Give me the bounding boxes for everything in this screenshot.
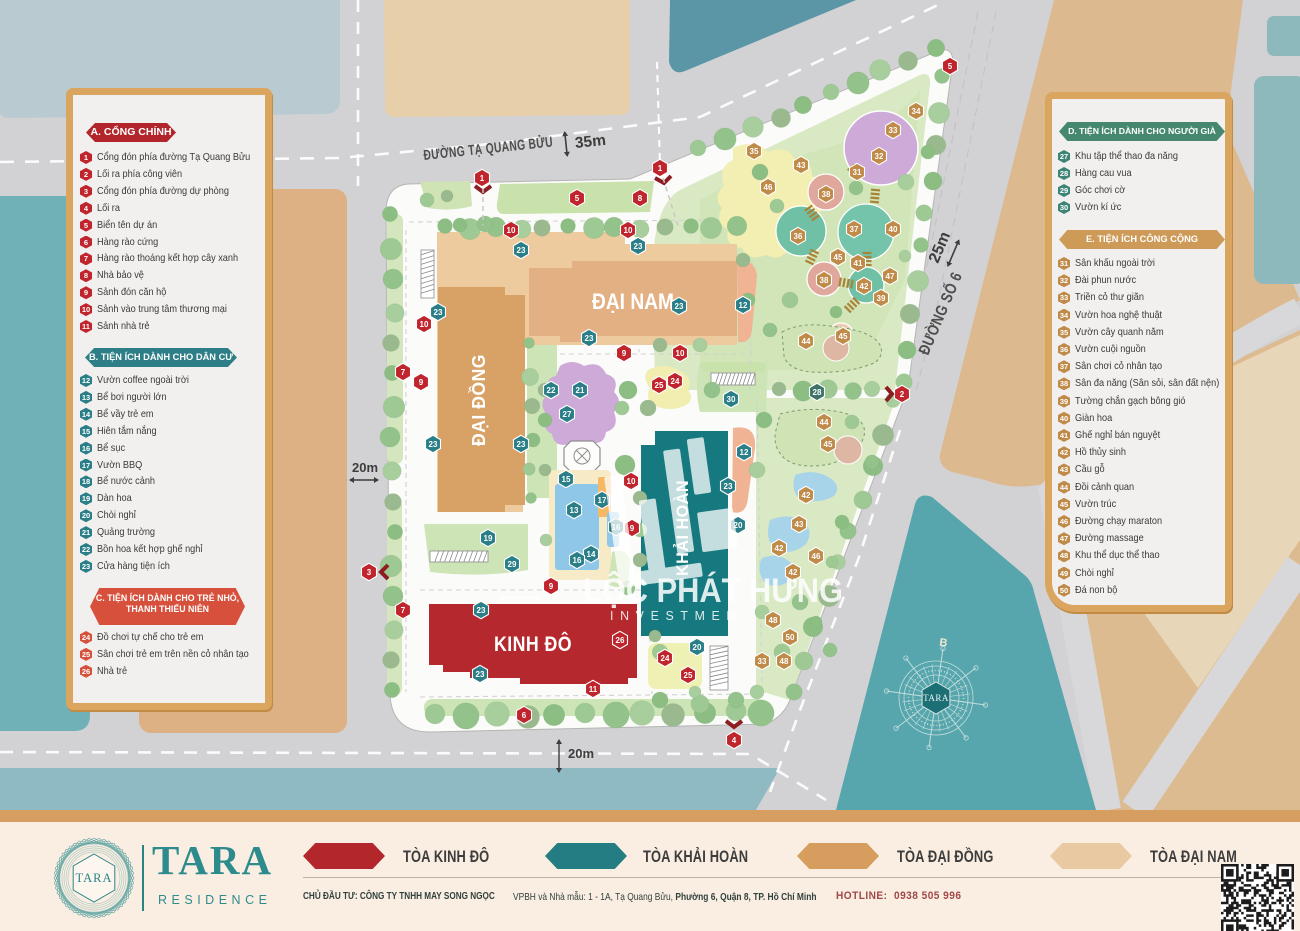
svg-text:13: 13 xyxy=(570,506,579,515)
svg-text:8: 8 xyxy=(638,194,643,203)
svg-text:46: 46 xyxy=(812,552,821,561)
svg-text:20: 20 xyxy=(693,643,702,652)
svg-text:27: 27 xyxy=(563,410,572,419)
svg-text:43: 43 xyxy=(795,520,804,529)
svg-text:42: 42 xyxy=(802,491,811,500)
svg-text:20m: 20m xyxy=(568,746,594,761)
svg-text:42: 42 xyxy=(775,544,784,553)
svg-text:9: 9 xyxy=(419,378,424,387)
svg-text:19: 19 xyxy=(484,534,493,543)
svg-text:10: 10 xyxy=(624,226,633,235)
svg-text:23: 23 xyxy=(477,606,486,615)
svg-text:4: 4 xyxy=(732,736,737,745)
svg-text:23: 23 xyxy=(634,242,643,251)
svg-text:38: 38 xyxy=(820,276,829,285)
svg-text:22: 22 xyxy=(547,386,556,395)
svg-text:7: 7 xyxy=(401,368,406,377)
svg-text:35: 35 xyxy=(750,147,759,156)
svg-text:23: 23 xyxy=(724,482,733,491)
svg-text:25: 25 xyxy=(684,671,693,680)
svg-text:TARA: TARA xyxy=(923,693,949,703)
svg-text:46: 46 xyxy=(764,183,773,192)
svg-text:24: 24 xyxy=(671,377,680,386)
svg-text:45: 45 xyxy=(834,253,843,262)
svg-text:KINH ĐÔ: KINH ĐÔ xyxy=(494,632,572,656)
svg-text:14: 14 xyxy=(587,550,596,559)
svg-text:23: 23 xyxy=(517,440,526,449)
svg-text:41: 41 xyxy=(854,259,863,268)
svg-text:48: 48 xyxy=(780,657,789,666)
svg-text:2: 2 xyxy=(900,390,905,399)
svg-text:10: 10 xyxy=(507,226,516,235)
svg-text:39: 39 xyxy=(877,294,886,303)
svg-text:16: 16 xyxy=(573,556,582,565)
svg-text:40: 40 xyxy=(889,225,898,234)
svg-text:ĐẠI ĐỒNG: ĐẠI ĐỒNG xyxy=(468,354,489,446)
svg-text:31: 31 xyxy=(853,168,862,177)
svg-text:5: 5 xyxy=(575,194,580,203)
svg-text:3: 3 xyxy=(367,568,372,577)
svg-text:20m: 20m xyxy=(352,460,378,475)
svg-text:43: 43 xyxy=(797,161,806,170)
svg-text:10: 10 xyxy=(676,349,685,358)
svg-text:9: 9 xyxy=(549,582,554,591)
svg-text:ĐẠI NAM: ĐẠI NAM xyxy=(592,289,674,314)
svg-text:45: 45 xyxy=(839,332,848,341)
svg-text:30: 30 xyxy=(727,395,736,404)
svg-text:11: 11 xyxy=(589,685,598,694)
svg-text:1: 1 xyxy=(480,174,485,183)
svg-text:17: 17 xyxy=(598,496,607,505)
svg-text:6: 6 xyxy=(522,711,527,720)
svg-text:28: 28 xyxy=(813,388,822,397)
svg-text:35m: 35m xyxy=(574,132,607,152)
svg-text:10: 10 xyxy=(420,320,429,329)
svg-text:10: 10 xyxy=(627,477,636,486)
svg-text:37: 37 xyxy=(850,225,859,234)
svg-text:48: 48 xyxy=(769,616,778,625)
svg-text:23: 23 xyxy=(585,334,594,343)
svg-text:29: 29 xyxy=(508,560,517,569)
svg-text:INVESTMEN: INVESTMEN xyxy=(610,608,742,623)
svg-text:23: 23 xyxy=(675,302,684,311)
svg-text:LỘC PHÁT HƯNG: LỘC PHÁT HƯNG xyxy=(583,571,843,610)
svg-text:23: 23 xyxy=(434,308,443,317)
svg-text:1: 1 xyxy=(658,164,663,173)
svg-text:36: 36 xyxy=(794,232,803,241)
svg-text:15: 15 xyxy=(562,475,571,484)
svg-text:47: 47 xyxy=(886,272,895,281)
svg-text:24: 24 xyxy=(661,654,670,663)
svg-text:38: 38 xyxy=(822,190,831,199)
svg-text:9: 9 xyxy=(630,524,635,533)
svg-text:32: 32 xyxy=(875,152,884,161)
svg-text:33: 33 xyxy=(758,657,767,666)
svg-text:44: 44 xyxy=(820,418,829,427)
svg-text:7: 7 xyxy=(401,606,406,615)
svg-text:TARA: TARA xyxy=(75,871,112,885)
svg-text:50: 50 xyxy=(786,633,795,642)
svg-text:12: 12 xyxy=(739,301,748,310)
svg-text:25: 25 xyxy=(655,381,664,390)
svg-text:23: 23 xyxy=(517,246,526,255)
svg-text:45: 45 xyxy=(824,440,833,449)
svg-text:33: 33 xyxy=(889,126,898,135)
svg-text:21: 21 xyxy=(576,386,585,395)
svg-text:26: 26 xyxy=(616,636,625,645)
svg-text:12: 12 xyxy=(740,448,749,457)
svg-text:5: 5 xyxy=(948,62,953,71)
svg-text:34: 34 xyxy=(912,107,921,116)
svg-text:23: 23 xyxy=(476,670,485,679)
svg-text:B: B xyxy=(939,637,949,650)
svg-text:23: 23 xyxy=(429,440,438,449)
svg-text:42: 42 xyxy=(860,282,869,291)
svg-text:44: 44 xyxy=(802,337,811,346)
svg-text:9: 9 xyxy=(622,349,627,358)
